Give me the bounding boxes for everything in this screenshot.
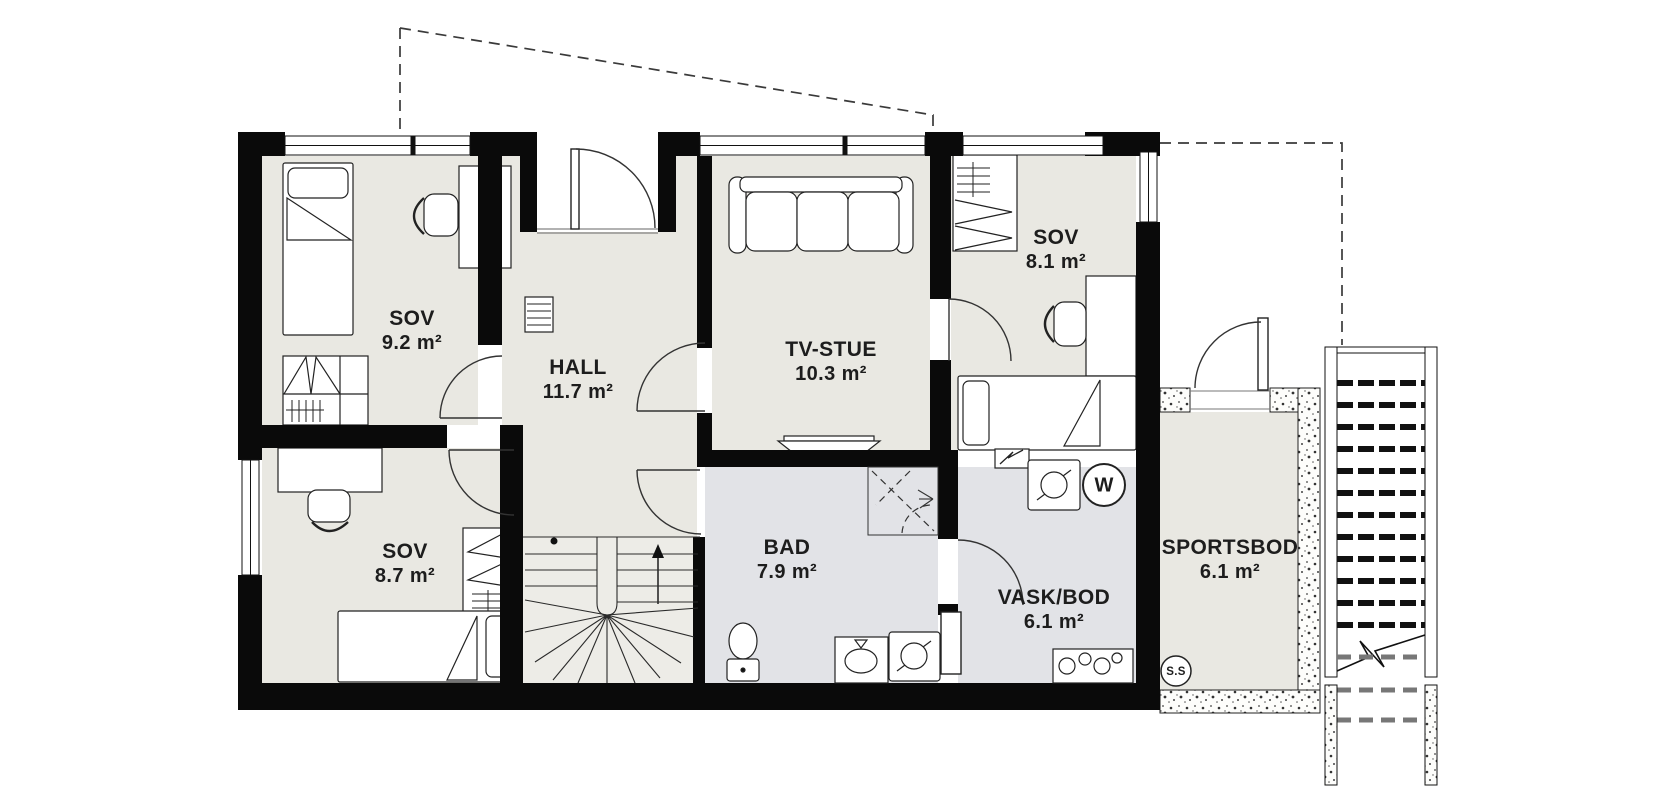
room-name: SOV [382, 306, 442, 331]
room-name: BAD [757, 535, 817, 560]
room-name: HALL [543, 355, 614, 380]
room-area: 6.1 m² [1162, 560, 1299, 585]
room-area: 11.7 m² [543, 380, 614, 405]
room-label-tv-stue: TV-STUE 10.3 m² [785, 337, 876, 387]
room-area: 8.7 m² [375, 564, 435, 589]
room-label-sov-1: SOV 9.2 m² [382, 306, 442, 356]
room-label-vask-bod: VASK/BOD 6.1 m² [998, 585, 1111, 635]
room-area: 7.9 m² [757, 560, 817, 585]
room-label-hall: HALL 11.7 m² [543, 355, 614, 405]
room-area: 10.3 m² [785, 362, 876, 387]
room-name: TV-STUE [785, 337, 876, 362]
room-name: VASK/BOD [998, 585, 1111, 610]
exterior-stair [1325, 347, 1437, 785]
room-name: SPORTSBOD [1162, 535, 1299, 560]
room-label-bad: BAD 7.9 m² [757, 535, 817, 585]
room-area: 6.1 m² [998, 610, 1111, 635]
water-heater-marker: W [1095, 475, 1114, 498]
room-area: 8.1 m² [1026, 250, 1086, 275]
room-label-sov-2: SOV 8.1 m² [1026, 225, 1086, 275]
room-name: SOV [1026, 225, 1086, 250]
room-label-sportsbod: SPORTSBOD 6.1 m² [1162, 535, 1299, 585]
floor-plan-canvas: SOV 9.2 m² HALL 11.7 m² TV-STUE 10.3 m² … [0, 0, 1670, 800]
room-area: 9.2 m² [382, 331, 442, 356]
room-label-sov-3: SOV 8.7 m² [375, 539, 435, 589]
floor-plan-drawing [0, 0, 1670, 800]
room-name: SOV [375, 539, 435, 564]
ss-badge-marker: S.S [1166, 666, 1185, 678]
